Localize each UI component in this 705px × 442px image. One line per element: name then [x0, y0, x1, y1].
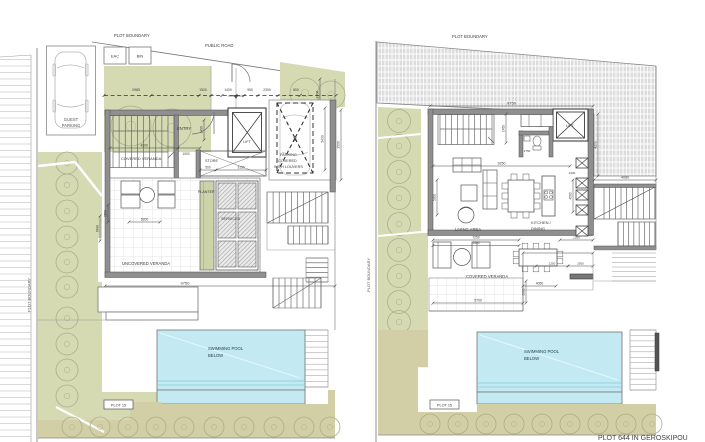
svg-text:PARKING: PARKING — [280, 153, 297, 157]
svg-text:STORE: STORE — [205, 159, 218, 163]
svg-text:3150: 3150 — [237, 166, 244, 170]
svg-text:UNCOVERED VERANDA: UNCOVERED VERANDA — [122, 261, 170, 266]
svg-text:PLOT BOUNDARY: PLOT BOUNDARY — [452, 34, 488, 39]
svg-text:1400: 1400 — [224, 88, 232, 92]
svg-text:6490: 6490 — [96, 225, 100, 232]
svg-text:2400: 2400 — [569, 171, 576, 175]
svg-text:9750: 9750 — [507, 101, 517, 106]
svg-text:WITH LOUVERS: WITH LOUVERS — [274, 165, 303, 169]
svg-text:KITCHEN /: KITCHEN / — [531, 220, 552, 225]
svg-text:PLOT BOUNDARY: PLOT BOUNDARY — [366, 258, 371, 292]
svg-text:2985: 2985 — [132, 88, 140, 92]
svg-text:4200: 4200 — [140, 144, 148, 148]
svg-text:4500: 4500 — [569, 192, 573, 199]
svg-text:LIFT: LIFT — [566, 124, 574, 128]
svg-text:SWIMMING POOL: SWIMMING POOL — [524, 349, 560, 354]
svg-text:BELOW: BELOW — [524, 356, 539, 361]
svg-text:5430: 5430 — [321, 135, 325, 143]
svg-text:1450: 1450 — [502, 125, 506, 132]
svg-text:4200: 4200 — [594, 141, 598, 149]
svg-text:1500: 1500 — [199, 88, 207, 92]
svg-text:1250: 1250 — [573, 236, 580, 240]
svg-text:500: 500 — [205, 166, 211, 170]
svg-text:LIVING AREA: LIVING AREA — [455, 227, 481, 232]
svg-text:PLOT 15: PLOT 15 — [111, 404, 126, 408]
svg-text:2500: 2500 — [577, 262, 584, 266]
svg-text:4080: 4080 — [621, 176, 629, 180]
svg-text:PLOT 15: PLOT 15 — [437, 404, 452, 408]
svg-text:PLANTER: PLANTER — [198, 190, 215, 194]
svg-text:ENTRY: ENTRY — [177, 126, 191, 131]
svg-text:X: X — [293, 138, 297, 144]
svg-text:DINING: DINING — [531, 226, 545, 231]
svg-text:1750: 1750 — [524, 149, 531, 153]
svg-text:950: 950 — [247, 88, 253, 92]
svg-text:PARKING: PARKING — [62, 123, 81, 128]
svg-text:2000: 2000 — [522, 288, 526, 295]
svg-text:BELOW: BELOW — [208, 353, 223, 358]
svg-text:3500: 3500 — [472, 241, 479, 245]
svg-text:COVERED: COVERED — [278, 159, 297, 163]
svg-text:1400: 1400 — [200, 126, 204, 134]
svg-text:PLOT BOUNDARY: PLOT BOUNDARY — [27, 278, 32, 312]
svg-text:BIN: BIN — [137, 54, 144, 59]
svg-text:PLOT 644 IN GEROSKIPOU: PLOT 644 IN GEROSKIPOU — [598, 435, 688, 442]
svg-text:PLOT BOUNDARY: PLOT BOUNDARY — [114, 33, 150, 38]
svg-text:SERVICES: SERVICES — [221, 217, 241, 221]
svg-text:4050: 4050 — [536, 282, 544, 286]
svg-text:5200: 5200 — [433, 194, 437, 201]
svg-text:800: 800 — [293, 88, 299, 92]
svg-text:5200: 5200 — [141, 218, 149, 222]
svg-text:COVERED VERANDA: COVERED VERANDA — [121, 156, 162, 161]
svg-text:1706: 1706 — [316, 91, 320, 99]
svg-text:3500: 3500 — [337, 141, 341, 149]
svg-text:EAC: EAC — [111, 54, 119, 59]
svg-text:1250: 1250 — [549, 262, 556, 266]
svg-text:LIFT: LIFT — [243, 140, 251, 144]
svg-text:5700: 5700 — [474, 299, 482, 303]
svg-text:2500: 2500 — [104, 210, 108, 217]
svg-text:SWIMMING POOL: SWIMMING POOL — [208, 346, 244, 351]
svg-text:9750: 9750 — [181, 281, 191, 286]
svg-text:GUEST: GUEST — [64, 117, 79, 122]
svg-text:9250: 9250 — [498, 162, 506, 166]
svg-text:1000: 1000 — [182, 152, 189, 156]
svg-text:2300: 2300 — [263, 88, 271, 92]
svg-text:7250: 7250 — [472, 236, 480, 240]
svg-text:PUBLIC ROAD: PUBLIC ROAD — [205, 43, 233, 48]
